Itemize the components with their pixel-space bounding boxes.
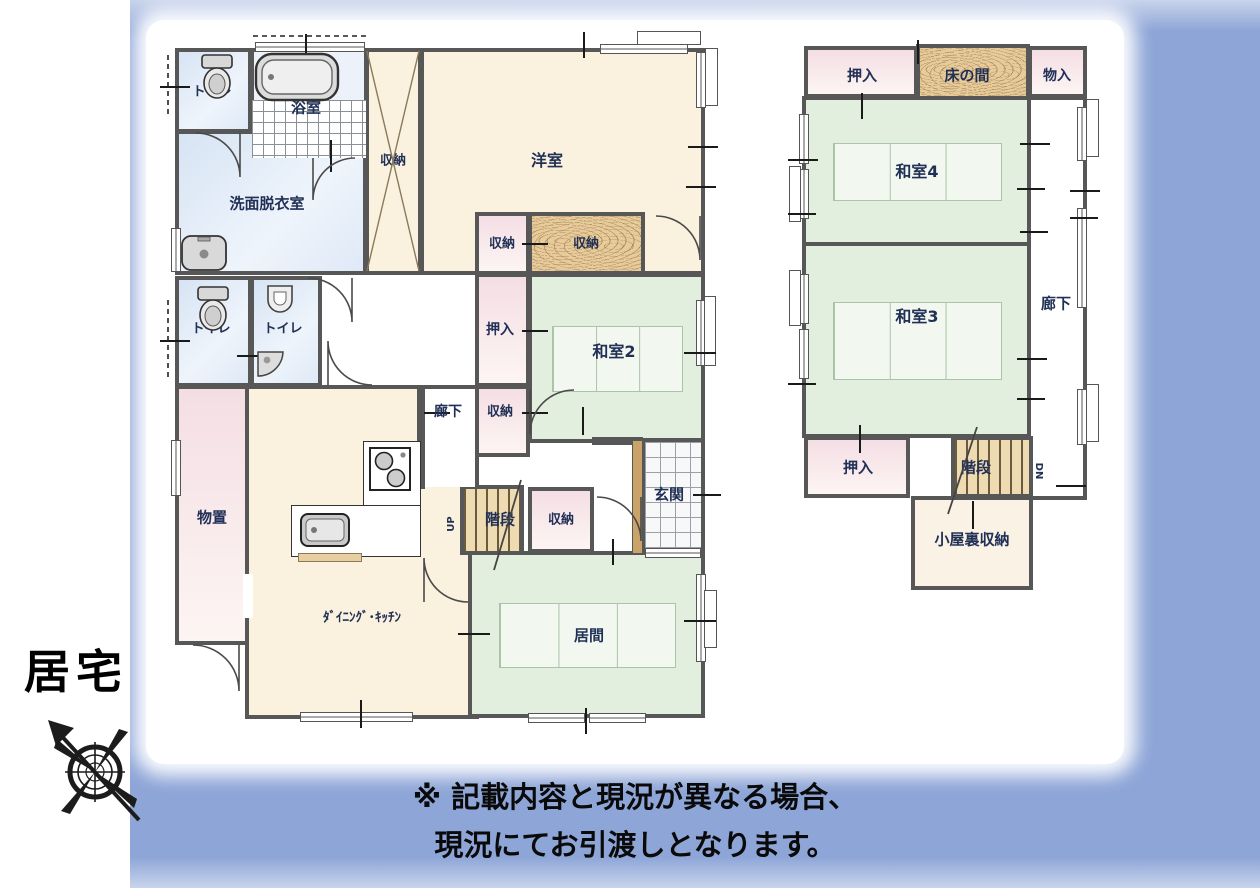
dimension-tick	[1070, 217, 1098, 219]
room-closet-low	[475, 385, 530, 457]
bay-window-mark	[789, 270, 801, 326]
bay-window-mark	[1086, 99, 1099, 157]
label-floor1-closet_low: 収納	[487, 406, 513, 419]
label-floor2-corridor: 廊下	[1041, 297, 1071, 312]
label-floor1-hallway: 廊下	[434, 405, 462, 419]
dimension-tick	[1017, 398, 1045, 400]
dimension-tick	[583, 32, 585, 58]
disclaimer-line-2: 現況にてお引渡しとなります。	[380, 821, 890, 869]
property-type-label: 居宅	[24, 636, 128, 702]
dimension-tick	[160, 340, 190, 342]
window-mark	[171, 440, 181, 496]
label-floor1-closet_mid: 収納	[489, 238, 515, 251]
dimension-tick	[859, 425, 861, 453]
dimension-tick	[160, 86, 190, 88]
dimension-tick	[1017, 188, 1045, 190]
label-floor2-oshiire_top: 押入	[847, 69, 877, 84]
counter-edge-shelf	[298, 553, 362, 562]
label-floor1-washroom: 洗面脱衣室	[229, 197, 304, 212]
label-floor1-stairs: 階段	[485, 513, 515, 528]
window-mark	[589, 713, 646, 723]
dimension-tick	[788, 383, 816, 385]
dimension-tick	[788, 159, 818, 161]
floor-plan-scene: トイレ浴室洗面脱衣室収納洋室収納収納押入和室2収納廊下トイレトイレ物置ﾀﾞｲﾆﾝ…	[0, 0, 1260, 888]
bay-window-mark	[1086, 384, 1099, 442]
dimension-tick	[360, 700, 362, 728]
doorway-gap	[243, 574, 253, 618]
dimension-tick	[917, 40, 919, 64]
dimension-tick	[582, 407, 584, 435]
label-floor2-stairs_dir: DN	[1033, 463, 1043, 480]
label-floor2-stairs: 階段	[961, 461, 991, 476]
label-floor2-oshiire_bottom: 押入	[843, 461, 873, 476]
label-floor2-tokonoma: 床の間	[944, 69, 989, 84]
dimension-tick	[972, 501, 974, 529]
label-floor1-storeroom: 物置	[197, 511, 227, 526]
window-mark	[528, 713, 585, 723]
dimension-tick	[522, 243, 548, 245]
stove-icon	[369, 447, 411, 491]
compass-rose-icon	[40, 712, 150, 828]
dimension-tick	[788, 213, 816, 215]
label-floor1-closet_stairs: 収納	[548, 514, 574, 527]
corner-sink-icon	[256, 350, 286, 378]
dimension-tick	[1056, 485, 1086, 487]
window-mark	[799, 114, 809, 164]
window-mark	[799, 329, 809, 379]
label-floor1-toilet3: トイレ	[263, 323, 302, 336]
window-mark	[255, 42, 365, 52]
urinal-icon	[264, 284, 296, 318]
bay-window-mark	[705, 48, 718, 106]
label-floor1-washitsu2: 和室2	[592, 344, 635, 360]
label-floor2-monoiri: 物入	[1043, 69, 1071, 83]
dimension-tick	[688, 146, 718, 148]
label-floor2-washitsu4: 和室4	[895, 164, 938, 180]
dimension-tick	[684, 352, 716, 354]
label-floor1-living: 居間	[574, 629, 604, 644]
dimension-tick	[1017, 358, 1047, 360]
bathtub-icon	[254, 52, 340, 102]
bay-window-mark	[704, 590, 717, 648]
entrance-step-board	[632, 440, 643, 554]
dimension-tick	[522, 330, 548, 332]
dimension-tick	[458, 633, 490, 635]
dimension-tick	[684, 620, 716, 622]
dimension-tick	[686, 186, 716, 188]
disclaimer-line-1: ※ 記載内容と現況が異なる場合、	[380, 773, 890, 821]
room-washitsu3	[802, 242, 1031, 438]
label-floor1-stairs_dir: UP	[447, 516, 457, 531]
dimension-tick	[330, 140, 332, 172]
window-mark	[1077, 208, 1087, 308]
label-floor1-oshiire: 押入	[486, 323, 514, 337]
kitchen-sink-icon	[299, 512, 351, 548]
dimension-tick	[1070, 190, 1100, 192]
washbasin-icon	[180, 234, 228, 272]
dimension-tick	[612, 539, 614, 565]
toilet-icon	[198, 54, 236, 100]
window-mark	[300, 712, 413, 722]
label-floor1-dining_kitchen: ﾀﾞｲﾆﾝｸﾞ･ｷｯﾁﾝ	[323, 612, 401, 625]
dimension-tick	[861, 93, 863, 119]
window-mark	[645, 548, 701, 558]
bay-window-mark	[637, 31, 701, 45]
dimension-tick	[1020, 231, 1048, 233]
label-floor2-attic: 小屋裏収納	[934, 533, 1009, 548]
disclaimer: ※ 記載内容と現況が異なる場合、 現況にてお引渡しとなります。	[380, 773, 890, 869]
label-floor1-bath: 浴室	[291, 101, 321, 116]
dimension-tick	[1020, 143, 1050, 145]
bay-window-mark	[704, 296, 716, 366]
dimension-tick	[522, 412, 548, 414]
dimension-tick	[693, 494, 721, 496]
label-floor2-washitsu3: 和室3	[895, 309, 938, 325]
window-mark	[600, 44, 688, 54]
toilet-icon	[194, 286, 232, 332]
dimension-tick	[585, 708, 587, 734]
label-floor1-closet_wood: 収納	[573, 238, 599, 251]
label-floor1-closet_tall: 収納	[380, 155, 406, 168]
label-floor1-entrance: 玄関	[654, 488, 684, 503]
label-floor1-western_room: 洋室	[531, 153, 563, 169]
